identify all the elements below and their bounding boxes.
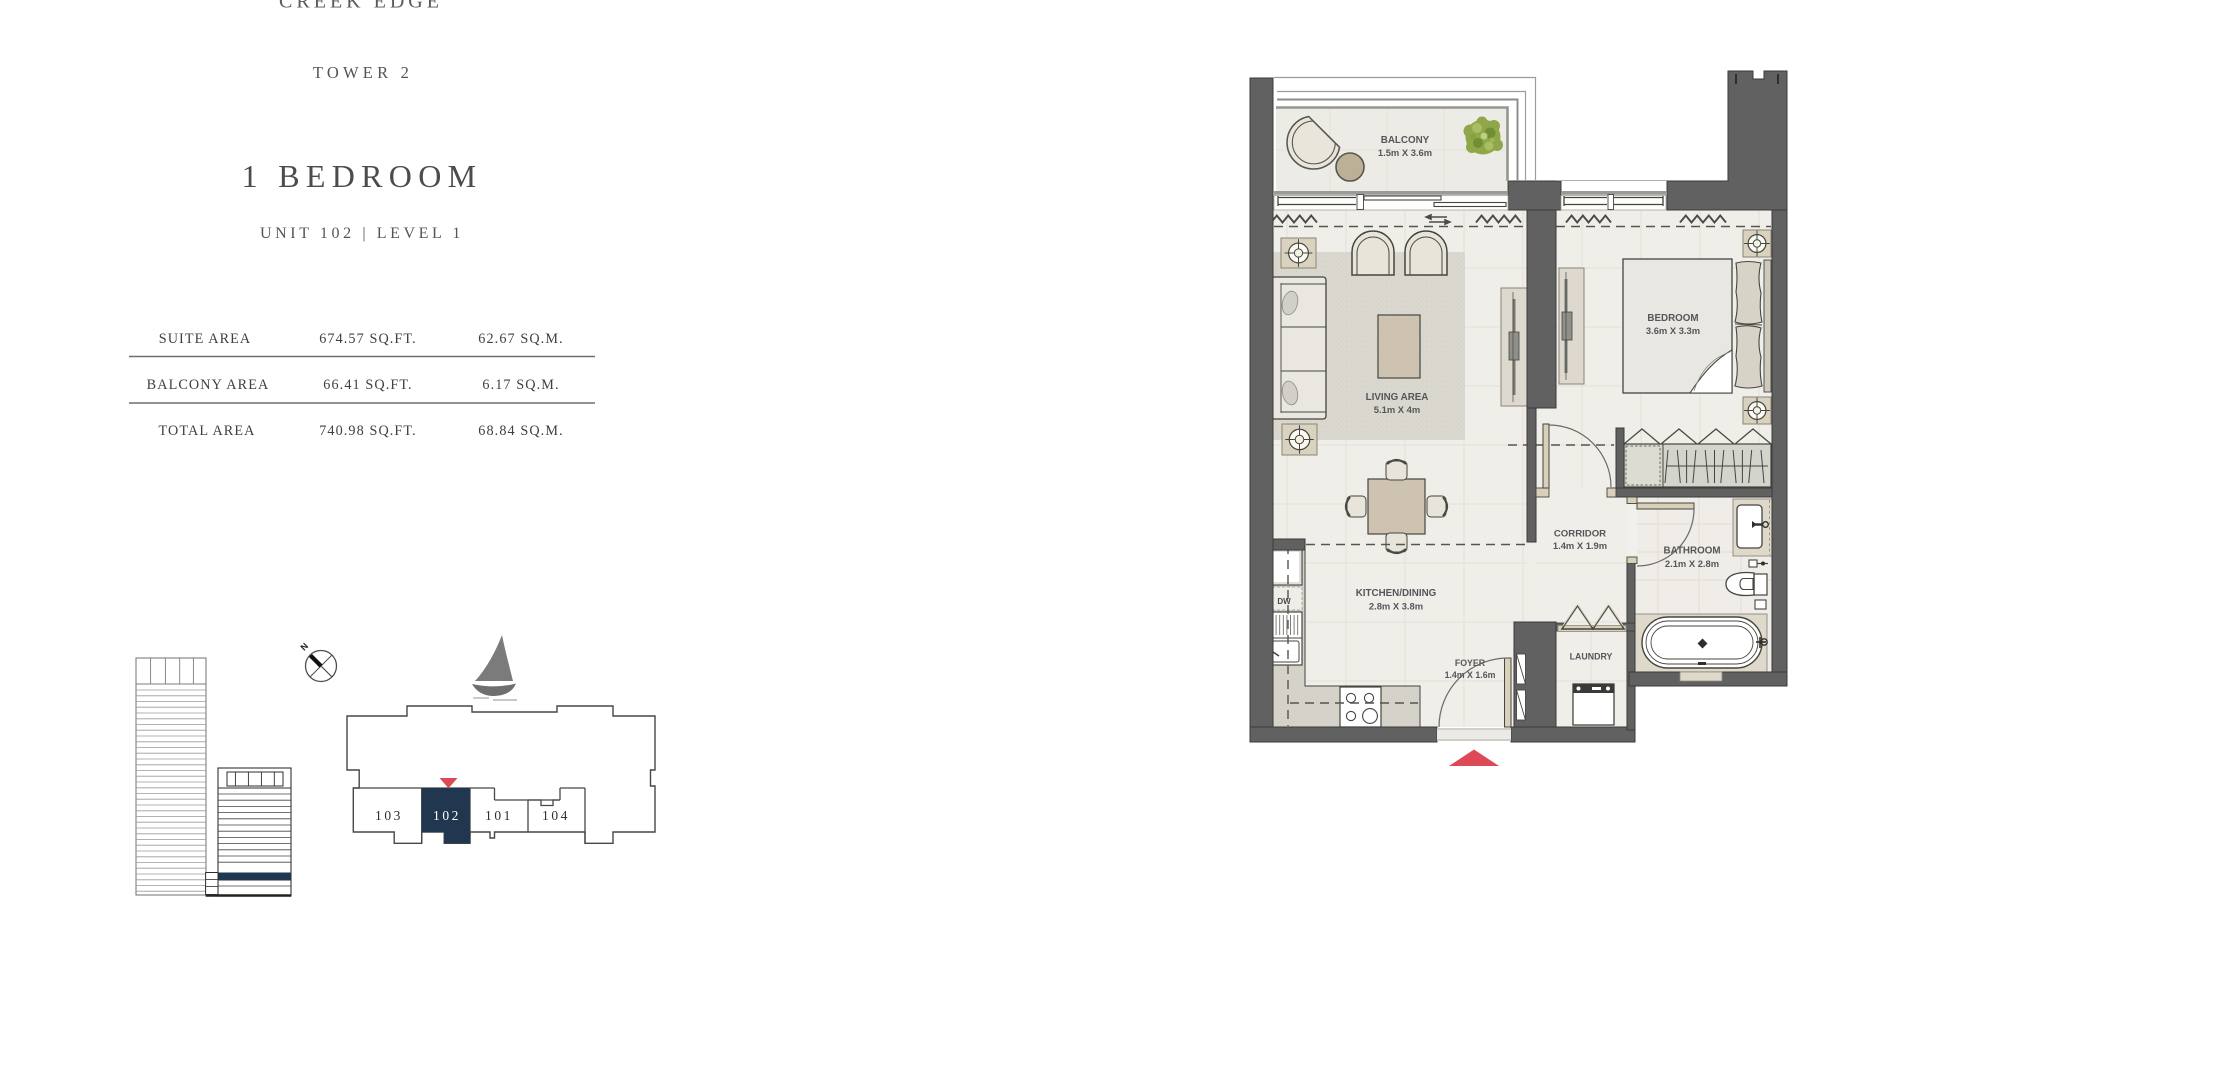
svg-text:62.67 SQ.M.: 62.67 SQ.M. (478, 331, 563, 347)
svg-text:68.84 SQ.M.: 68.84 SQ.M. (478, 423, 563, 439)
svg-text:TOWER 2: TOWER 2 (313, 63, 413, 82)
svg-text:SUITE AREA: SUITE AREA (159, 331, 252, 347)
svg-text:6.17 SQ.M.: 6.17 SQ.M. (482, 377, 559, 393)
svg-text:KITCHEN/DINING: KITCHEN/DINING (1356, 588, 1437, 599)
svg-text:BALCONY: BALCONY (1381, 135, 1430, 146)
svg-text:UNIT 102 | LEVEL 1: UNIT 102 | LEVEL 1 (260, 225, 464, 242)
svg-text:LAUNDRY: LAUNDRY (1570, 652, 1613, 662)
svg-text:LIVING AREA: LIVING AREA (1366, 392, 1429, 403)
svg-text:CREEK EDGE: CREEK EDGE (279, 0, 443, 13)
svg-text:674.57 SQ.FT.: 674.57 SQ.FT. (319, 331, 417, 347)
svg-text:2.8m X 3.8m: 2.8m X 3.8m (1369, 601, 1423, 612)
svg-text:1.5m X 3.6m: 1.5m X 3.6m (1378, 147, 1432, 158)
svg-text:740.98 SQ.FT.: 740.98 SQ.FT. (319, 423, 417, 439)
svg-text:2.1m X 2.8m: 2.1m X 2.8m (1665, 558, 1719, 569)
svg-text:104: 104 (542, 808, 570, 823)
svg-text:TOTAL AREA: TOTAL AREA (159, 423, 256, 439)
svg-text:BEDROOM: BEDROOM (1647, 313, 1698, 324)
svg-text:DW: DW (1277, 597, 1291, 606)
svg-text:1.4m X 1.6m: 1.4m X 1.6m (1445, 670, 1496, 680)
svg-text:3.6m X 3.3m: 3.6m X 3.3m (1646, 325, 1700, 336)
svg-text:101: 101 (485, 808, 513, 823)
svg-text:FOYER: FOYER (1455, 658, 1486, 668)
svg-text:103: 103 (375, 808, 403, 823)
svg-text:CORRIDOR: CORRIDOR (1554, 529, 1606, 540)
svg-text:102: 102 (433, 808, 461, 823)
svg-text:5.1m X 4m: 5.1m X 4m (1374, 404, 1420, 415)
svg-text:BATHROOM: BATHROOM (1664, 546, 1721, 557)
svg-text:BALCONY AREA: BALCONY AREA (147, 377, 270, 393)
svg-text:66.41 SQ.FT.: 66.41 SQ.FT. (323, 377, 412, 393)
svg-text:1 BEDROOM: 1 BEDROOM (242, 158, 483, 194)
svg-text:1.4m X 1.9m: 1.4m X 1.9m (1553, 540, 1607, 551)
